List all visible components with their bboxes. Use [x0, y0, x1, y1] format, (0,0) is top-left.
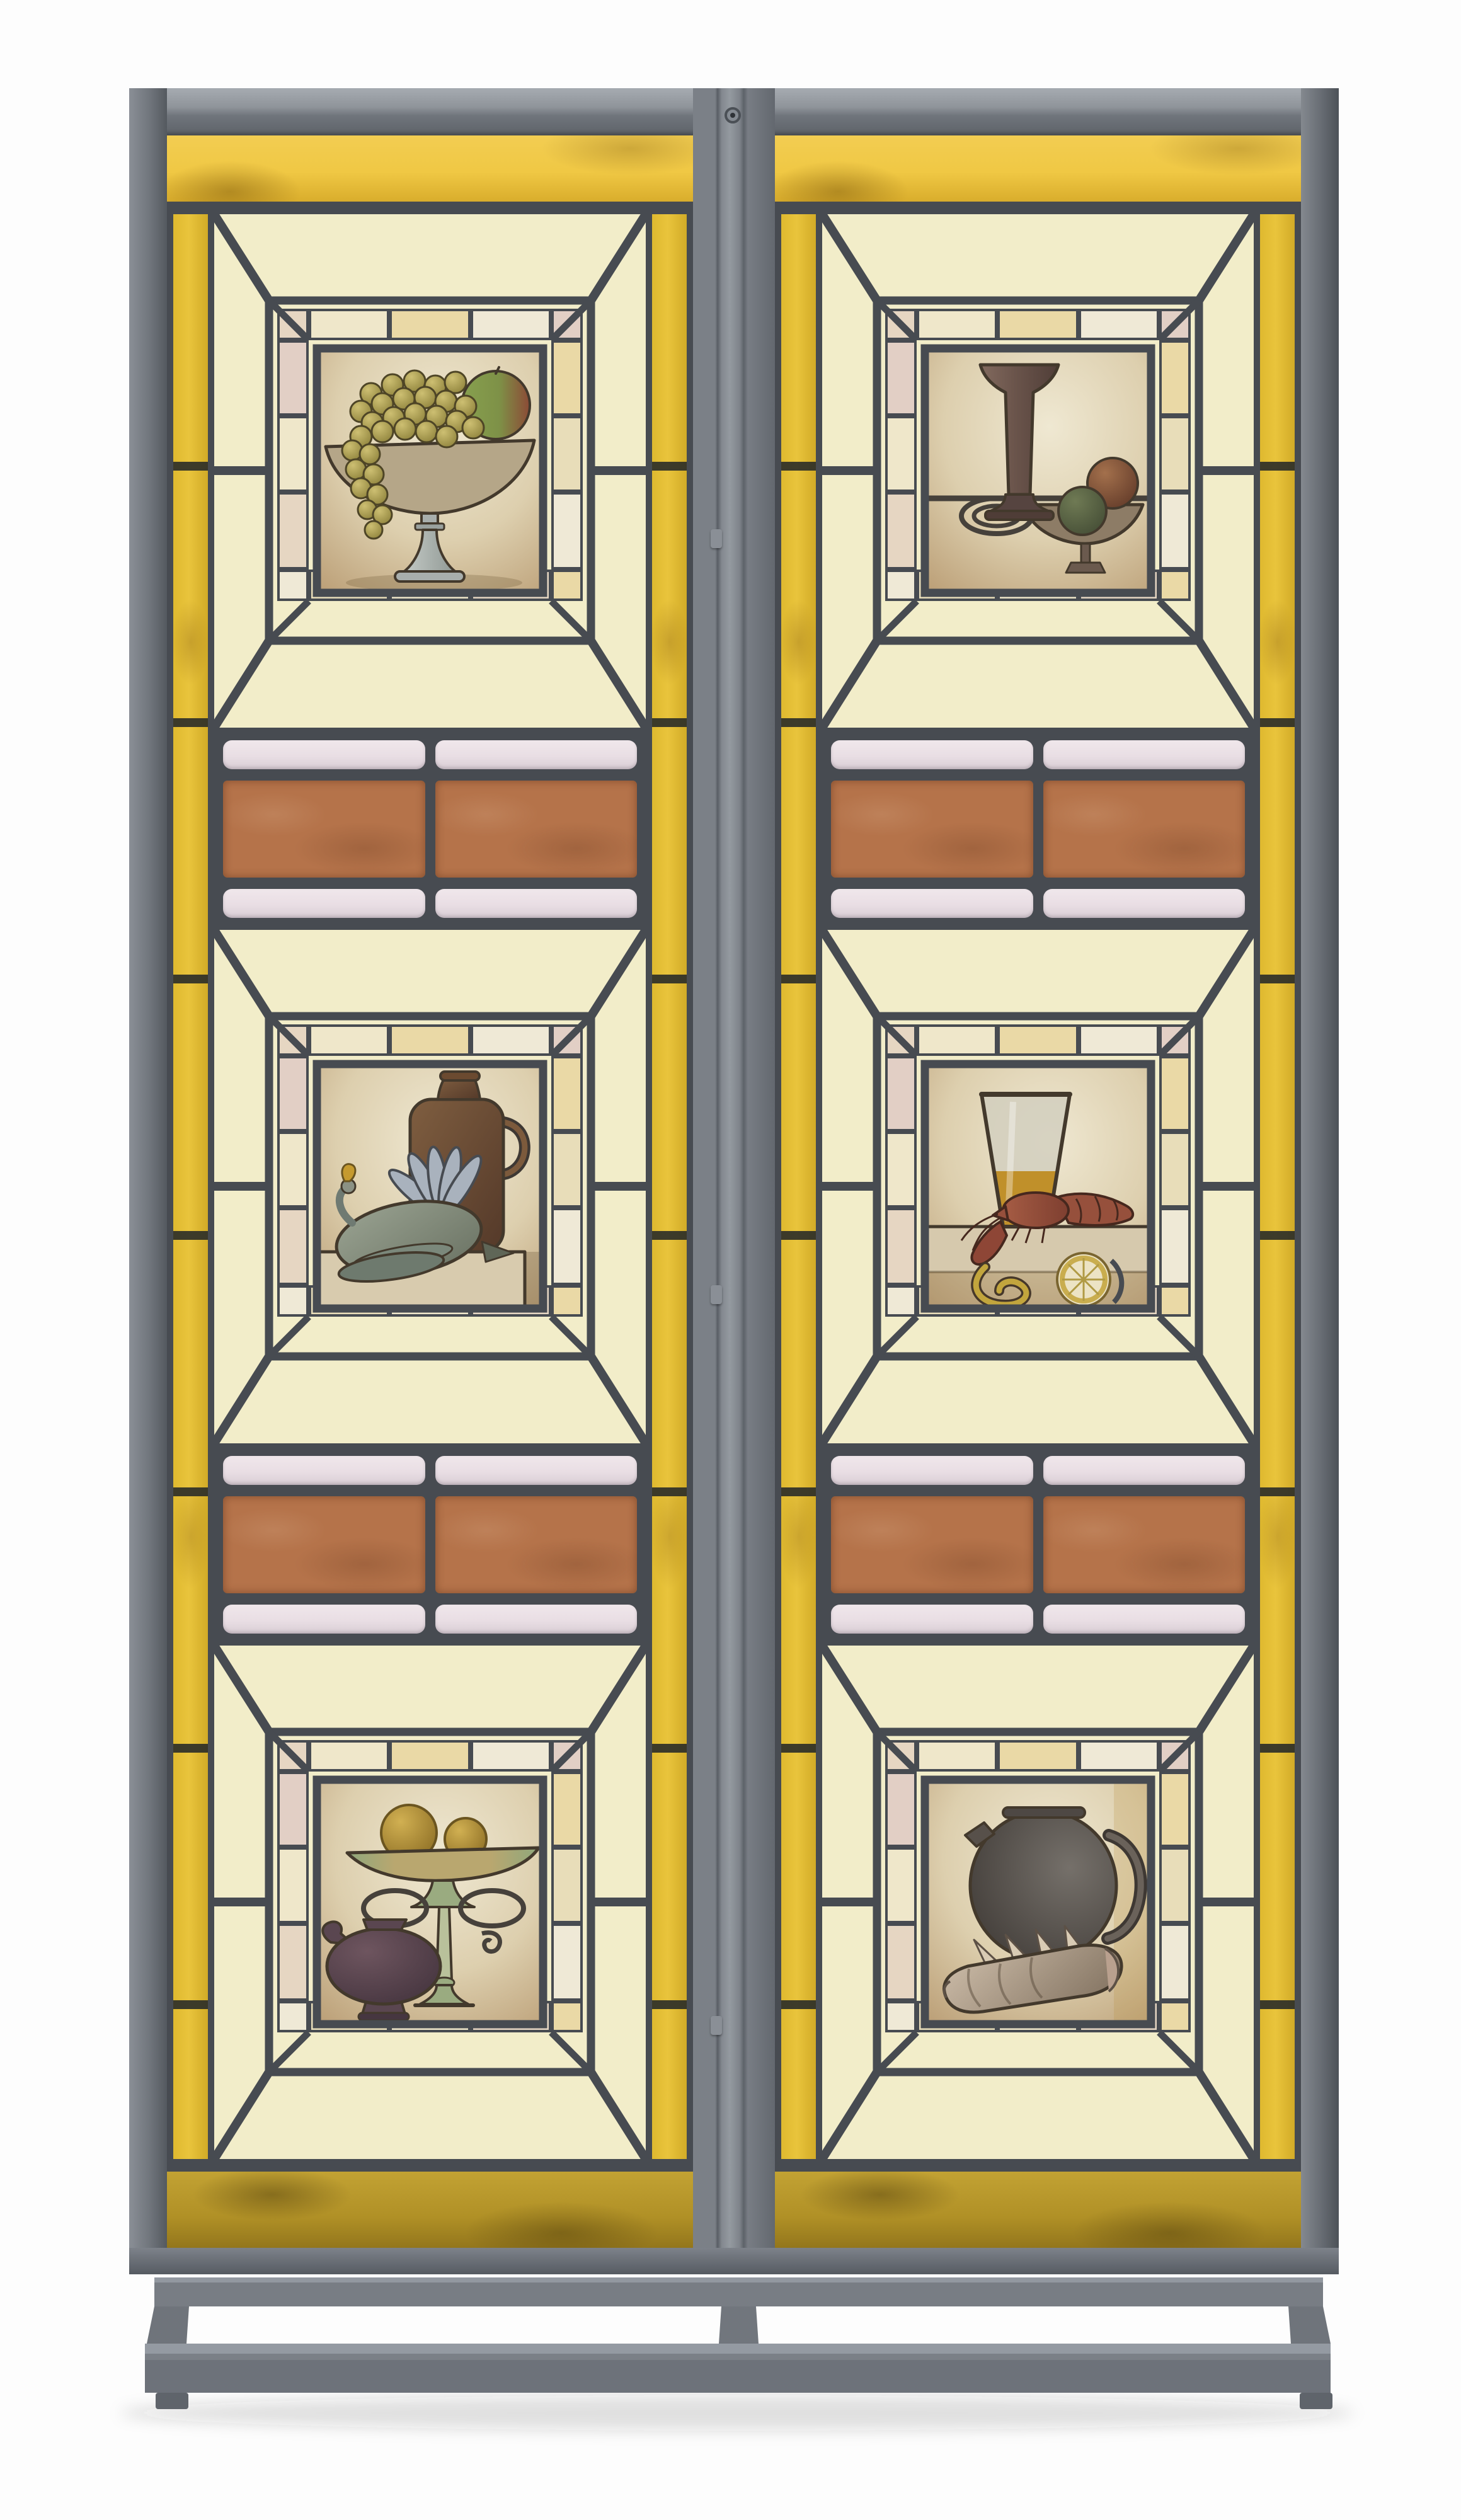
pink-glass-cell	[831, 740, 1033, 769]
section-still-life	[214, 214, 646, 728]
pink-glass-cell	[435, 1605, 638, 1634]
divider-band-glass	[822, 1443, 1254, 1646]
terracotta-glass-cell	[435, 781, 638, 878]
photo-backdrop	[0, 0, 1461, 2520]
hinge-knuckle	[711, 529, 722, 548]
hinge-pin	[725, 107, 741, 123]
center-hinge-post	[693, 88, 775, 2274]
yellow-edge-strip	[1254, 214, 1301, 2159]
yellow-top-border-glass	[167, 135, 693, 214]
frame-left-stile	[129, 88, 167, 2274]
still-life-tazza-oil-lamp	[317, 1780, 543, 2024]
hinge-knuckle	[711, 2016, 722, 2035]
amber-bottom-border-glass	[167, 2159, 693, 2248]
floor-shadow	[120, 2395, 1355, 2431]
amber-bottom-border-glass	[775, 2159, 1301, 2248]
metal-stand	[0, 2274, 1461, 2488]
terracotta-glass-cell	[831, 781, 1033, 878]
still-life-beer-lobster-lemon	[925, 1064, 1151, 1309]
pink-glass-cell	[435, 889, 638, 918]
stand-center-rail	[719, 2306, 759, 2344]
stand-foot	[1300, 2393, 1332, 2409]
still-life-jug-game-bird	[317, 1064, 543, 1309]
section-still-life	[822, 1646, 1254, 2159]
terracotta-glass-cell	[1043, 1496, 1246, 1593]
frame-right-stile	[1301, 88, 1339, 2274]
pink-glass-cell	[223, 889, 425, 918]
divider-band-glass	[214, 1443, 646, 1646]
pink-glass-cell	[1043, 740, 1246, 769]
still-life-compote-grapes-apple	[317, 348, 543, 593]
pink-glass-cell	[435, 1456, 638, 1485]
section-still-life	[822, 214, 1254, 728]
terracotta-glass-cell	[223, 781, 425, 878]
terracotta-glass-cell	[1043, 781, 1246, 878]
stand-foot	[156, 2393, 188, 2409]
pink-glass-cell	[831, 1605, 1033, 1634]
pink-glass-cell	[1043, 889, 1246, 918]
divider-band-glass	[214, 728, 646, 930]
glass-panel-right	[775, 135, 1301, 2248]
section-still-life	[822, 930, 1254, 1443]
hinge-knuckle	[711, 1285, 722, 1304]
pink-glass-cell	[1043, 1456, 1246, 1485]
stand-front-rail-top	[145, 2344, 1331, 2354]
section-still-life	[214, 930, 646, 1443]
terracotta-glass-cell	[223, 1496, 425, 1593]
stand-right-rail	[1288, 2306, 1331, 2344]
stained-glass-screen	[129, 88, 1339, 2274]
pink-glass-cell	[223, 740, 425, 769]
pink-glass-cell	[223, 1605, 425, 1634]
terracotta-glass-cell	[435, 1496, 638, 1593]
pink-glass-cell	[831, 889, 1033, 918]
pink-glass-cell	[831, 1456, 1033, 1485]
still-life-jug-conch-shell	[925, 1780, 1151, 2024]
divider-band-glass	[822, 728, 1254, 930]
frame-bottom-rail	[129, 2248, 1339, 2274]
pink-glass-cell	[223, 1456, 425, 1485]
pink-glass-cell	[435, 740, 638, 769]
glass-panel-left	[167, 135, 693, 2248]
pink-glass-cell	[1043, 1605, 1246, 1634]
yellow-edge-strip	[167, 214, 214, 2159]
section-still-life	[214, 1646, 646, 2159]
terracotta-glass-cell	[831, 1496, 1033, 1593]
still-life-trumpet-vase-fruit-dish	[925, 348, 1151, 593]
stand-left-rail	[147, 2306, 189, 2344]
yellow-edge-strip	[775, 214, 822, 2159]
yellow-top-border-glass	[775, 135, 1301, 214]
yellow-edge-strip	[646, 214, 693, 2159]
